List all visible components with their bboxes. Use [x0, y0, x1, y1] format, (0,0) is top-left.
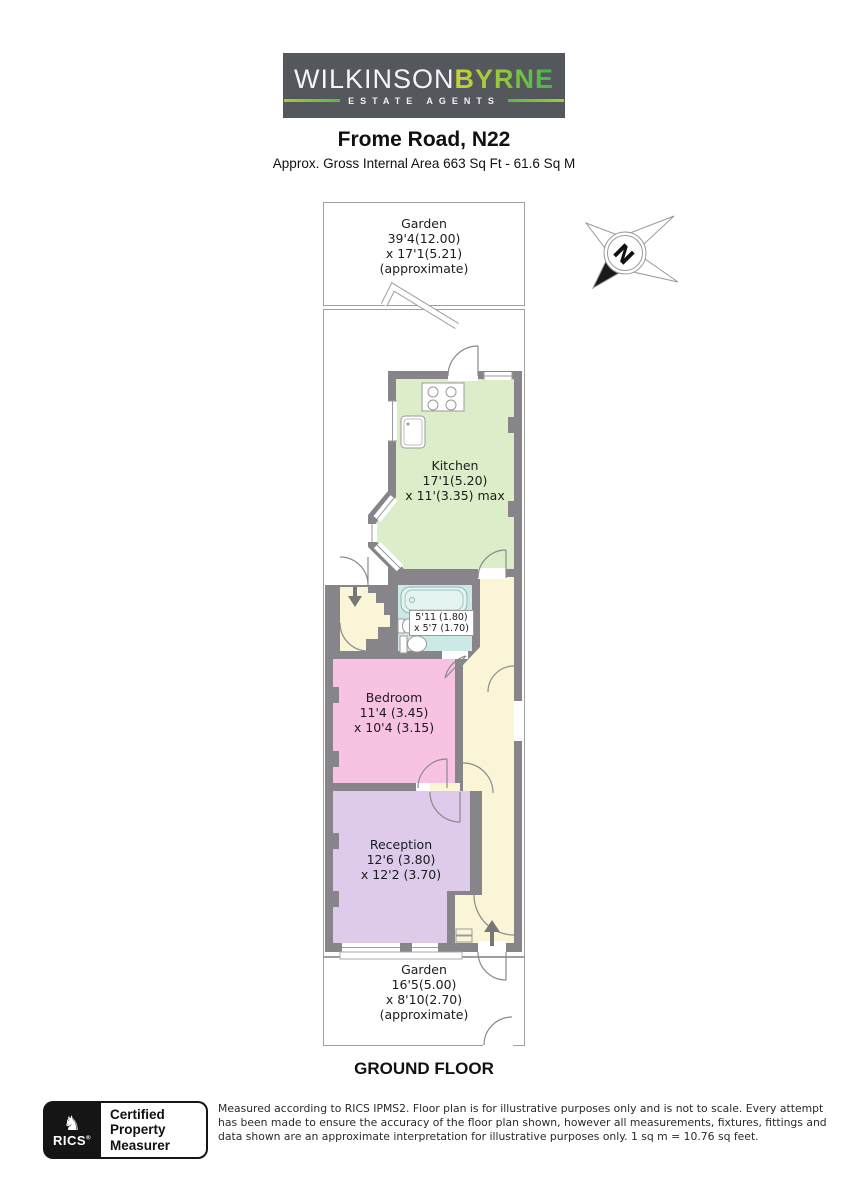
garden-top-label: Garden 39'4(12.00) x 17'1(5.21) (approxi… — [324, 216, 524, 276]
disclaimer-line-1: Measured according to RICS IPMS2. Floor … — [218, 1102, 830, 1116]
bedroom-dim1: 11'4 (3.45) — [294, 705, 494, 720]
agency-name-part2: BYRNE — [455, 64, 555, 94]
bedroom-label: Bedroom 11'4 (3.45) x 10'4 (3.15) — [294, 690, 494, 735]
floor-name-label: GROUND FLOOR — [174, 1059, 674, 1079]
compass-icon: N — [578, 212, 682, 316]
rics-acronym: RICS® — [53, 1133, 91, 1148]
agency-name-part1: WILKINSON — [294, 64, 455, 94]
garden-bottom-dim2: x 8'10(2.70) — [324, 992, 524, 1007]
floorplan-page: WILKINSONBYRNE ESTATE AGENTS Frome Road,… — [0, 0, 848, 1200]
rics-badge-text: Certified Property Measurer — [101, 1101, 208, 1159]
tagline-rule-right — [508, 99, 564, 102]
kitchen-dim2: x 11'(3.35) max — [355, 488, 555, 503]
garden-top-dim2: x 17'1(5.21) — [324, 246, 524, 261]
bathroom-dim2: x 5'7 (1.70) — [414, 623, 469, 634]
kitchen-dim1: 17'1(5.20) — [355, 473, 555, 488]
rics-logo: ♞ RICS® — [43, 1101, 101, 1159]
garden-bottom-note: (approximate) — [324, 1007, 524, 1022]
badge-line-2: Property — [110, 1122, 206, 1138]
rics-acronym-text: RICS — [53, 1133, 86, 1148]
disclaimer-line-3: data shown are an approximate interpreta… — [218, 1130, 830, 1144]
reception-name: Reception — [301, 837, 501, 852]
agency-tagline: ESTATE AGENTS — [348, 96, 500, 106]
side-passage-gap — [513, 701, 524, 741]
reception-dim2: x 12'2 (3.70) — [301, 867, 501, 882]
kitchen-name: Kitchen — [355, 458, 555, 473]
toilet-icon — [400, 636, 427, 653]
kitchen-left-window — [388, 401, 397, 441]
agency-logo: WILKINSONBYRNE ESTATE AGENTS — [283, 53, 565, 118]
reception-dim1: 12'6 (3.80) — [301, 852, 501, 867]
garden-bottom-label: Garden 16'5(5.00) x 8'10(2.70) (approxim… — [324, 962, 524, 1022]
sink-icon — [401, 416, 425, 448]
reception-label: Reception 12'6 (3.80) x 12'2 (3.70) — [301, 837, 501, 882]
disclaimer-line-2: has been made to ensure the accuracy of … — [218, 1116, 830, 1130]
registered-mark: ® — [86, 1135, 91, 1141]
tagline-rule-left — [284, 99, 340, 102]
garden-top-dim1: 39'4(12.00) — [324, 231, 524, 246]
garden-bottom-name: Garden — [324, 962, 524, 977]
garden-bottom-dim1: 16'5(5.00) — [324, 977, 524, 992]
hob-icon — [422, 383, 464, 411]
kitchen-label: Kitchen 17'1(5.20) x 11'(3.35) max — [355, 458, 555, 503]
agency-logo-tagline-row: ESTATE AGENTS — [284, 96, 564, 106]
bedroom-name: Bedroom — [294, 690, 494, 705]
badge-line-1: Certified — [110, 1107, 206, 1123]
bedroom-dim2: x 10'4 (3.15) — [294, 720, 494, 735]
kitchen-top-window — [484, 372, 512, 380]
bathroom-label: 5'11 (1.80) x 5'7 (1.70) — [409, 610, 474, 636]
badge-line-3: Measurer — [110, 1138, 206, 1154]
bathroom-dim1: 5'11 (1.80) — [414, 612, 469, 623]
garden-top-note: (approximate) — [324, 261, 524, 276]
disclaimer-text: Measured according to RICS IPMS2. Floor … — [218, 1102, 830, 1145]
agency-logo-wordmark: WILKINSONBYRNE — [294, 66, 554, 93]
rics-lion-icon: ♞ — [63, 1113, 81, 1133]
page-title: Frome Road, N22 — [0, 128, 848, 152]
rics-certification-badge: ♞ RICS® Certified Property Measurer — [43, 1101, 208, 1159]
page-subtitle: Approx. Gross Internal Area 663 Sq Ft - … — [0, 156, 848, 171]
garden-top-name: Garden — [324, 216, 524, 231]
